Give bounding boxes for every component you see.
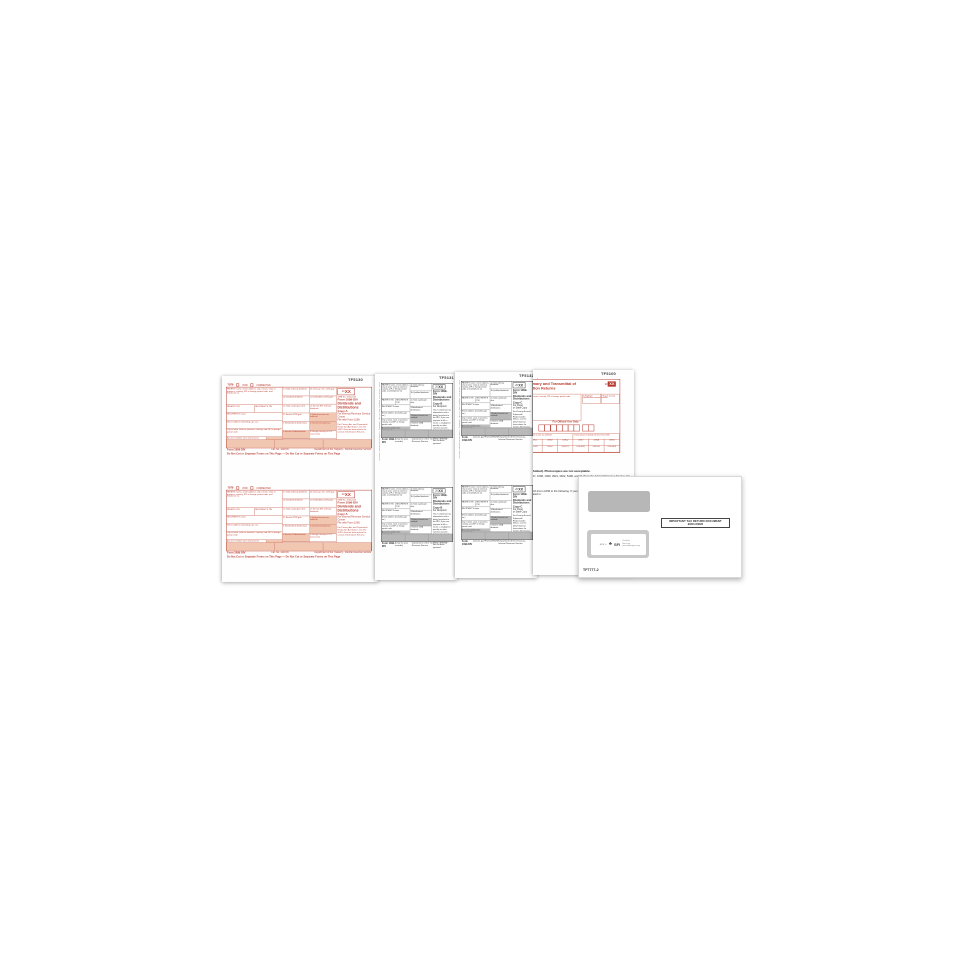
city-box: City or town, state or province, country…	[226, 429, 282, 437]
corrected-label: CORRECTED	[256, 487, 270, 489]
box-4: 4 Federal income tax withheld	[410, 414, 431, 422]
recycle-mark: env +	[600, 542, 607, 546]
box-3: 3 Nondividend distributions	[410, 511, 431, 519]
form-type-cell: 1098-Q	[558, 439, 573, 446]
form-title: Annual Summary and Transmittal of U.S. I…	[533, 382, 582, 391]
year-xx: XX	[438, 385, 443, 389]
form-grid: PAYER'S name, street address, city or to…	[461, 485, 533, 540]
city-box: City or town, state or province, country…	[381, 419, 409, 427]
copy-note: or State Copy	[513, 407, 532, 410]
footer-form-number: Form 1099-DIV	[462, 540, 473, 545]
box-8: 8 Foreign country or U.S. possession	[310, 533, 336, 542]
street-box: Street address (including apt. no.)	[226, 524, 282, 532]
box-2e: 2e Section 897 ordinary dividends	[310, 405, 336, 414]
footer-department: Department of the Treasury - Internal Re…	[314, 552, 371, 555]
box-2d: 2d Collectibles (28%) gain	[310, 396, 336, 405]
box-1a: 1a Total ordinary dividends	[410, 487, 431, 495]
year-xx: XX	[345, 492, 351, 497]
box-6: 6 Investment expenses	[310, 422, 336, 431]
box-4: 4 Federal income tax withheld	[310, 413, 336, 422]
box-2a: 2a Total capital gain distr.	[490, 501, 511, 509]
notice-box: IMPORTANT TAX RETURN DOCUMENT ENCLOSED	[661, 518, 730, 528]
tax-year-box: 20 XX	[513, 382, 526, 388]
form-type-cell: 1099-LTC	[558, 445, 573, 452]
form-number: Form 1099-DIV	[337, 501, 370, 504]
city-box: City or town, state or province, country…	[461, 521, 489, 529]
payer-name-box: PAYER'S name, street address, city or to…	[226, 387, 282, 405]
form-title: Dividends and Distributions	[337, 402, 370, 409]
do-not-cut-line: Do Not Cut or Separate Forms on This Pag…	[226, 452, 372, 456]
recipient-name-box: RECIPIENT'S name	[226, 516, 282, 524]
footer-form-number: Form 1099-DIV	[382, 438, 395, 443]
tax-year-box: 20 XX	[337, 491, 355, 498]
form-1099div-copy-a: 7979 VOID CORRECTED PAYER'S name, street…	[226, 383, 372, 464]
ein-box: 1 Employer identification number	[582, 394, 601, 404]
sfi-tree-icon: ♣	[609, 542, 612, 547]
footer-department: Department of the Treasury - Internal Re…	[498, 540, 532, 545]
form-1096: Form 1096 Department of the Treasury Int…	[533, 379, 620, 453]
box-6: 6 Investment expenses	[310, 525, 336, 534]
box-2c: 2c Section 1202 gain	[283, 413, 309, 422]
privacy-fine-print: For Privacy Act and Paperwork Reduction …	[337, 423, 370, 434]
recipient-name-box: RECIPIENT'S name	[226, 413, 282, 421]
copy-for: For Recipient	[433, 405, 452, 408]
form-1099div-copy-c: PAYER'S name, street address, city or to…	[461, 381, 533, 458]
footer-form-number: Form 1099-DIV	[462, 436, 473, 441]
form-type-cell: 1099-OID	[589, 445, 604, 452]
tax-year-box: 20 XX	[513, 486, 526, 492]
ssn-box: 2 Social security number	[600, 394, 619, 404]
form-type-cell: 1098-C	[533, 439, 542, 446]
street-box: Street address (including apt. no.)	[461, 410, 489, 417]
sheet-code: TF5100	[601, 371, 616, 376]
payer-name-box: PAYER'S name, street address, city or to…	[381, 383, 409, 398]
form-type-cell: 1099-MISC	[573, 445, 588, 452]
form-type-cell: 1099-PATR	[604, 445, 619, 452]
box-1b: 1b Qualified dividends	[283, 499, 309, 508]
recipient-name-box: RECIPIENT'S name	[461, 507, 489, 514]
sheet-code: TF5132	[519, 373, 534, 378]
box-4: 4 Federal income tax withheld	[410, 518, 431, 526]
tax-year-box: 20 XX	[605, 381, 616, 386]
form-title: Dividends and Distributions	[433, 396, 452, 402]
box-3: 3 Nondividend distributions	[410, 407, 431, 415]
box-5: 5 Section 199A dividends	[490, 524, 511, 532]
do-not-cut-line: Do Not Cut or Separate Forms on This Pag…	[226, 555, 372, 559]
box-1b: 1b Qualified dividends	[283, 396, 309, 405]
void-label: VOID	[242, 487, 247, 489]
payer-tin-box: PAYER'S TIN	[226, 405, 254, 413]
envelope: IMPORTANT TAX RETURN DOCUMENT ENCLOSED e…	[578, 476, 742, 578]
form-title: Dividends and Distributions	[337, 505, 370, 512]
official-use-label: For Official Use Only	[552, 421, 578, 424]
recipient-name-box: RECIPIENT'S name	[381, 509, 409, 516]
window-interior: env + ♣ SFI Certified Sourcing www.sfipr…	[591, 534, 646, 555]
box-5: 5 Section 199A dividends	[410, 422, 431, 430]
box-1b: 1b Qualified dividends	[490, 493, 511, 501]
box-2a: 2a Total capital gain distr.	[283, 508, 309, 517]
recipient-name-box: RECIPIENT'S name	[461, 403, 489, 410]
box-2e: 2e Section 897 ordinary dividends	[310, 508, 336, 517]
form-number: Form 1099-DIV	[433, 494, 452, 499]
street-box: Street address (including apt. no.)	[381, 412, 409, 419]
copy-note: or State Copy	[513, 511, 532, 514]
form-title: Dividends and Distributions	[513, 499, 532, 505]
state-section-band	[226, 439, 371, 447]
sheet-code: TF5130	[348, 377, 363, 382]
official-use-boxes	[539, 425, 594, 432]
footer-cat-number: Cat. No. 14415N	[271, 552, 288, 555]
box-1b: 1b Qualified dividends	[410, 391, 431, 399]
title-line-2: U.S. Information Returns	[533, 386, 582, 390]
street-box: Street address (including apt. no.)	[226, 421, 282, 429]
product-photo-tax-form-set: TF5130 7979 VOID CORRECTED PAYER'S name,…	[0, 0, 960, 960]
box-5: 5 Section 199A dividends	[410, 526, 431, 534]
footer-department: Department of the Treasury - Internal Re…	[498, 436, 532, 441]
instructions-bold-line: Send the forms in a flat mailing (not fo…	[533, 470, 631, 474]
box-4: 4 Federal income tax withheld	[490, 412, 511, 420]
state-section-band	[381, 430, 452, 438]
year-xx: XX	[608, 381, 616, 386]
box-2b: 2b Unrecap. Sec. 1250 gain	[310, 387, 336, 396]
box-3: 3 Nondividend distributions	[283, 422, 309, 431]
recipient-fine-print: This is important tax information and is…	[433, 409, 452, 444]
footer-keep-note: (keep for your records)	[395, 438, 412, 443]
sfi-caption: Certified Sourcing www.sfiprogram.org	[622, 540, 636, 548]
box-1a: 1a Total ordinary dividends	[283, 387, 309, 396]
copy-for: For Recipient	[433, 509, 452, 512]
footer-url: www.irs.gov/Form1099DIV	[473, 436, 499, 441]
street-box: Street address (including apt. no.)	[461, 514, 489, 521]
corrected-label: CORRECTED	[256, 384, 270, 386]
notice-text: IMPORTANT TAX RETURN DOCUMENT ENCLOSED	[662, 520, 729, 526]
box-3: 3 Nondividend distributions	[490, 509, 511, 517]
form-1099div-copy-b: PAYER'S name, street address, city or to…	[381, 487, 453, 564]
year-xx: XX	[518, 383, 523, 387]
form-1099div-copy-c: PAYER'S name, street address, city or to…	[461, 485, 533, 562]
city-box: City or town, state or province, country…	[226, 532, 282, 540]
state-section-band	[461, 428, 532, 436]
box-5: 5 Section 199A dividends	[283, 533, 309, 542]
sheet-code: TF5131	[439, 375, 454, 380]
payer-name-box: PAYER'S name, street address, city or to…	[226, 490, 282, 508]
year-xx: XX	[518, 487, 523, 491]
recipient-name-box: RECIPIENT'S name	[381, 405, 409, 412]
form-number: Form 1099-DIV	[513, 389, 532, 394]
sheet-copy-b: TF5131 Form 1099-DIV Department of the T…	[375, 374, 457, 580]
footer-url: www.irs.gov/Form1099DIV	[473, 540, 499, 545]
form-type-cell: 1098-T	[573, 439, 588, 446]
year-xx: XX	[345, 389, 351, 394]
form-title: Dividends and Distributions	[513, 395, 532, 401]
envelope-product-code: TF7777-2	[583, 568, 599, 572]
form-number: Form 1099-DIV	[337, 398, 370, 401]
city-box: City or town, state or province, country…	[381, 523, 409, 531]
street-box: Street address (including apt. no.)	[381, 516, 409, 523]
recipient-tin-box: RECIPIENT'S TIN	[255, 508, 283, 516]
state-section-band	[461, 532, 532, 540]
copy-note: File with Form 1096.	[337, 522, 370, 525]
box-5: 5 Section 199A dividends	[283, 430, 309, 439]
void-label: VOID	[242, 384, 247, 386]
tax-year-box: 20 XX	[433, 488, 446, 493]
form-grid: PAYER'S name, street address, city or to…	[226, 490, 372, 551]
filer-name-box: FILER'S name, street address, city or to…	[533, 394, 581, 421]
box-4: 4 Federal income tax withheld	[310, 516, 336, 525]
box-2a: 2a Total capital gain distr.	[490, 397, 511, 405]
city-box: City or town, state or province, country…	[461, 417, 489, 425]
box-3: 3 Nondividend distributions	[283, 525, 309, 534]
form-footer: Form 1099-DIV www.irs.gov/Form1099DIV De…	[461, 540, 533, 546]
form-type-cell: 1099-B	[604, 439, 619, 446]
form-type-cell: 1099-A	[589, 439, 604, 446]
form-grid: PAYER'S name, street address, city or to…	[381, 487, 453, 542]
box-2a: 2a Total capital gain distr.	[410, 503, 431, 511]
sfi-logo: SFI	[614, 542, 620, 547]
recipient-address-window: env + ♣ SFI Certified Sourcing www.sfipr…	[587, 530, 649, 558]
payer-name-box: PAYER'S name, street address, city or to…	[461, 381, 489, 396]
year-xx: XX	[438, 489, 443, 493]
sheet-copy-a: TF5130 7979 VOID CORRECTED PAYER'S name,…	[222, 376, 378, 582]
box-2a: 2a Total capital gain distr.	[283, 405, 309, 414]
box-1a: 1a Total ordinary dividends	[490, 381, 511, 389]
sheet-copy-c: TF5132 Form 1099-DIV Department of the T…	[455, 372, 537, 578]
return-address-window	[588, 491, 650, 512]
edge-fine-print: Form 1099-DIV Department of the Treasury…	[456, 380, 460, 570]
box-1a: 1a Total ordinary dividends	[490, 485, 511, 493]
box-2a: 2a Total capital gain distr.	[410, 399, 431, 407]
copy-note: File with Form 1096.	[337, 419, 370, 422]
privacy-fine-print: For Privacy Act and Paperwork Reduction …	[337, 526, 370, 537]
form-footer: Form 1099-DIV www.irs.gov/Form1099DIV De…	[461, 436, 533, 442]
state-section-band	[381, 534, 452, 542]
form-type-cell: 1099-K	[542, 445, 557, 452]
box-1a: 1a Total ordinary dividends	[410, 383, 431, 391]
box-2b: 2b Unrecap. Sec. 1250 gain	[310, 490, 336, 499]
footer-form-number: Form 1099-DIV	[227, 552, 245, 555]
footer-keep-note: (keep for your records)	[395, 542, 412, 547]
footer-form-number: Form 1099-DIV	[227, 449, 245, 452]
form-title: Dividends and Distributions	[433, 500, 452, 506]
box-3: 3 Nondividend distributions	[490, 405, 511, 413]
tax-year-box: 20 XX	[337, 388, 355, 395]
box-1b: 1b Qualified dividends	[490, 389, 511, 397]
payer-tin-box: PAYER'S TIN	[226, 508, 254, 516]
footer-form-number: Form 1099-DIV	[382, 542, 395, 547]
box-4: 4 Federal income tax withheld	[490, 516, 511, 524]
footer-cat-number: Cat. No. 14415N	[271, 449, 288, 452]
form-type-cell: 1099-INT	[533, 445, 542, 452]
form-type-cell: 1098-E	[542, 439, 557, 446]
box-5: 5 Section 199A dividends	[490, 420, 511, 428]
form-grid: PAYER'S name, street address, city or to…	[381, 383, 453, 438]
box-2d: 2d Collectibles (28%) gain	[310, 499, 336, 508]
box-1b: 1b Qualified dividends	[410, 495, 431, 503]
state-section-band	[226, 542, 371, 550]
payer-name-box: PAYER'S name, street address, city or to…	[381, 487, 409, 502]
form-type-grid: W-2G 1097-BTC 1098 1098-C 1098-E 1098-Q …	[533, 439, 620, 453]
edge-fine-print: Form 1099-DIV Department of the Treasury…	[376, 382, 380, 572]
footer-department: Department of the Treasury - Internal Re…	[314, 449, 371, 452]
recipient-tin-box: RECIPIENT'S TIN	[255, 405, 283, 413]
tax-year-box: 20 XX	[433, 384, 446, 389]
form-number: Form 1099-DIV	[513, 493, 532, 498]
payer-name-box: PAYER'S name, street address, city or to…	[461, 485, 489, 500]
form-grid: PAYER'S name, street address, city or to…	[461, 381, 533, 436]
box-2c: 2c Section 1202 gain	[283, 516, 309, 525]
form-1099div-copy-a: 7979 VOID CORRECTED PAYER'S name, street…	[226, 486, 372, 567]
box-8: 8 Foreign country or U.S. possession	[310, 430, 336, 439]
form-1099div-copy-b: PAYER'S name, street address, city or to…	[381, 383, 453, 460]
box-1a: 1a Total ordinary dividends	[283, 490, 309, 499]
form-number: Form 1099-DIV	[433, 390, 452, 395]
recipient-fine-print: This is important tax information and is…	[433, 513, 452, 548]
form-grid: PAYER'S name, street address, city or to…	[226, 387, 372, 448]
